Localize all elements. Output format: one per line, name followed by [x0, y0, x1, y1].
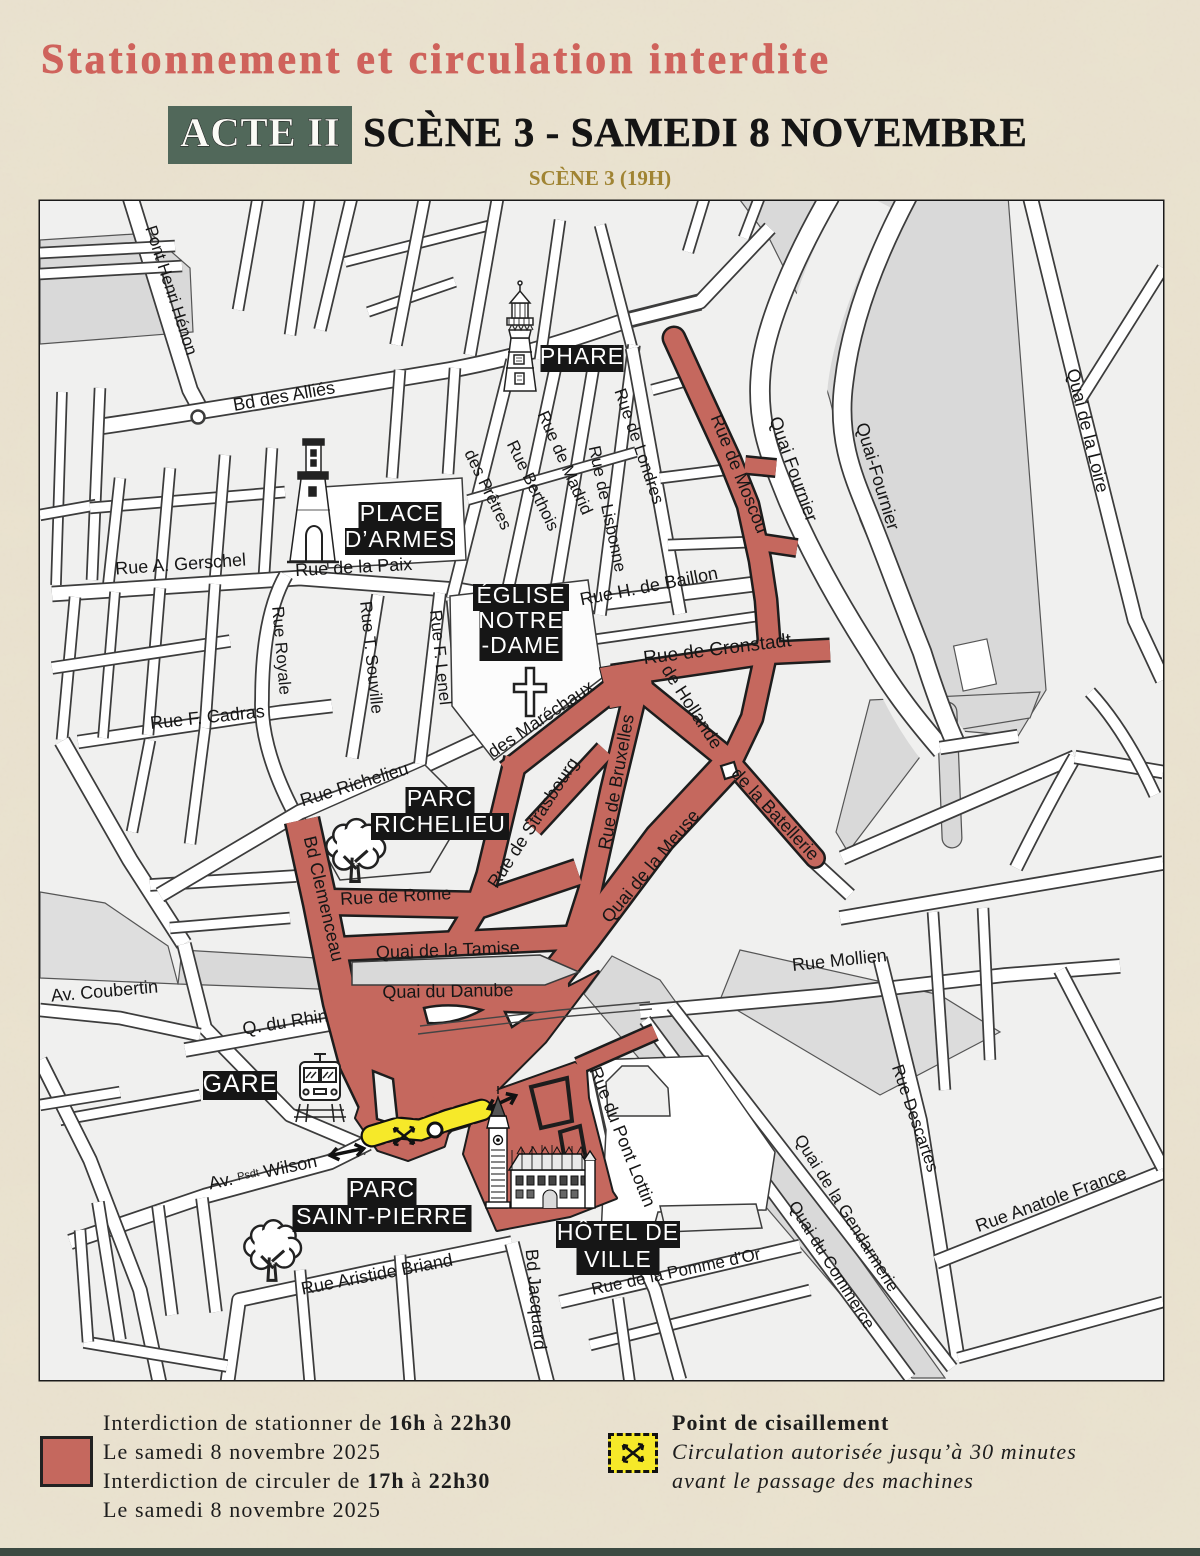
svg-text:SAINT-PIERRE: SAINT-PIERRE — [296, 1203, 468, 1229]
svg-text:GARE: GARE — [203, 1070, 278, 1098]
svg-text:NOTRE: NOTRE — [478, 607, 564, 633]
svg-text:PLACE: PLACE — [360, 500, 440, 526]
svg-text:HÔTEL DE: HÔTEL DE — [557, 1218, 679, 1245]
svg-text:Quai du Danube: Quai du Danube — [382, 980, 513, 1002]
svg-text:PHARE: PHARE — [540, 343, 624, 369]
svg-text:D’ARMES: D’ARMES — [345, 526, 456, 552]
svg-text:PARC: PARC — [407, 785, 473, 811]
svg-text:ÉGLISE: ÉGLISE — [476, 582, 565, 608]
svg-text:RICHELIEU: RICHELIEU — [374, 811, 506, 837]
svg-text:-DAME: -DAME — [481, 632, 560, 658]
svg-text:VILLE: VILLE — [584, 1246, 652, 1272]
svg-text:PARC: PARC — [349, 1176, 415, 1202]
